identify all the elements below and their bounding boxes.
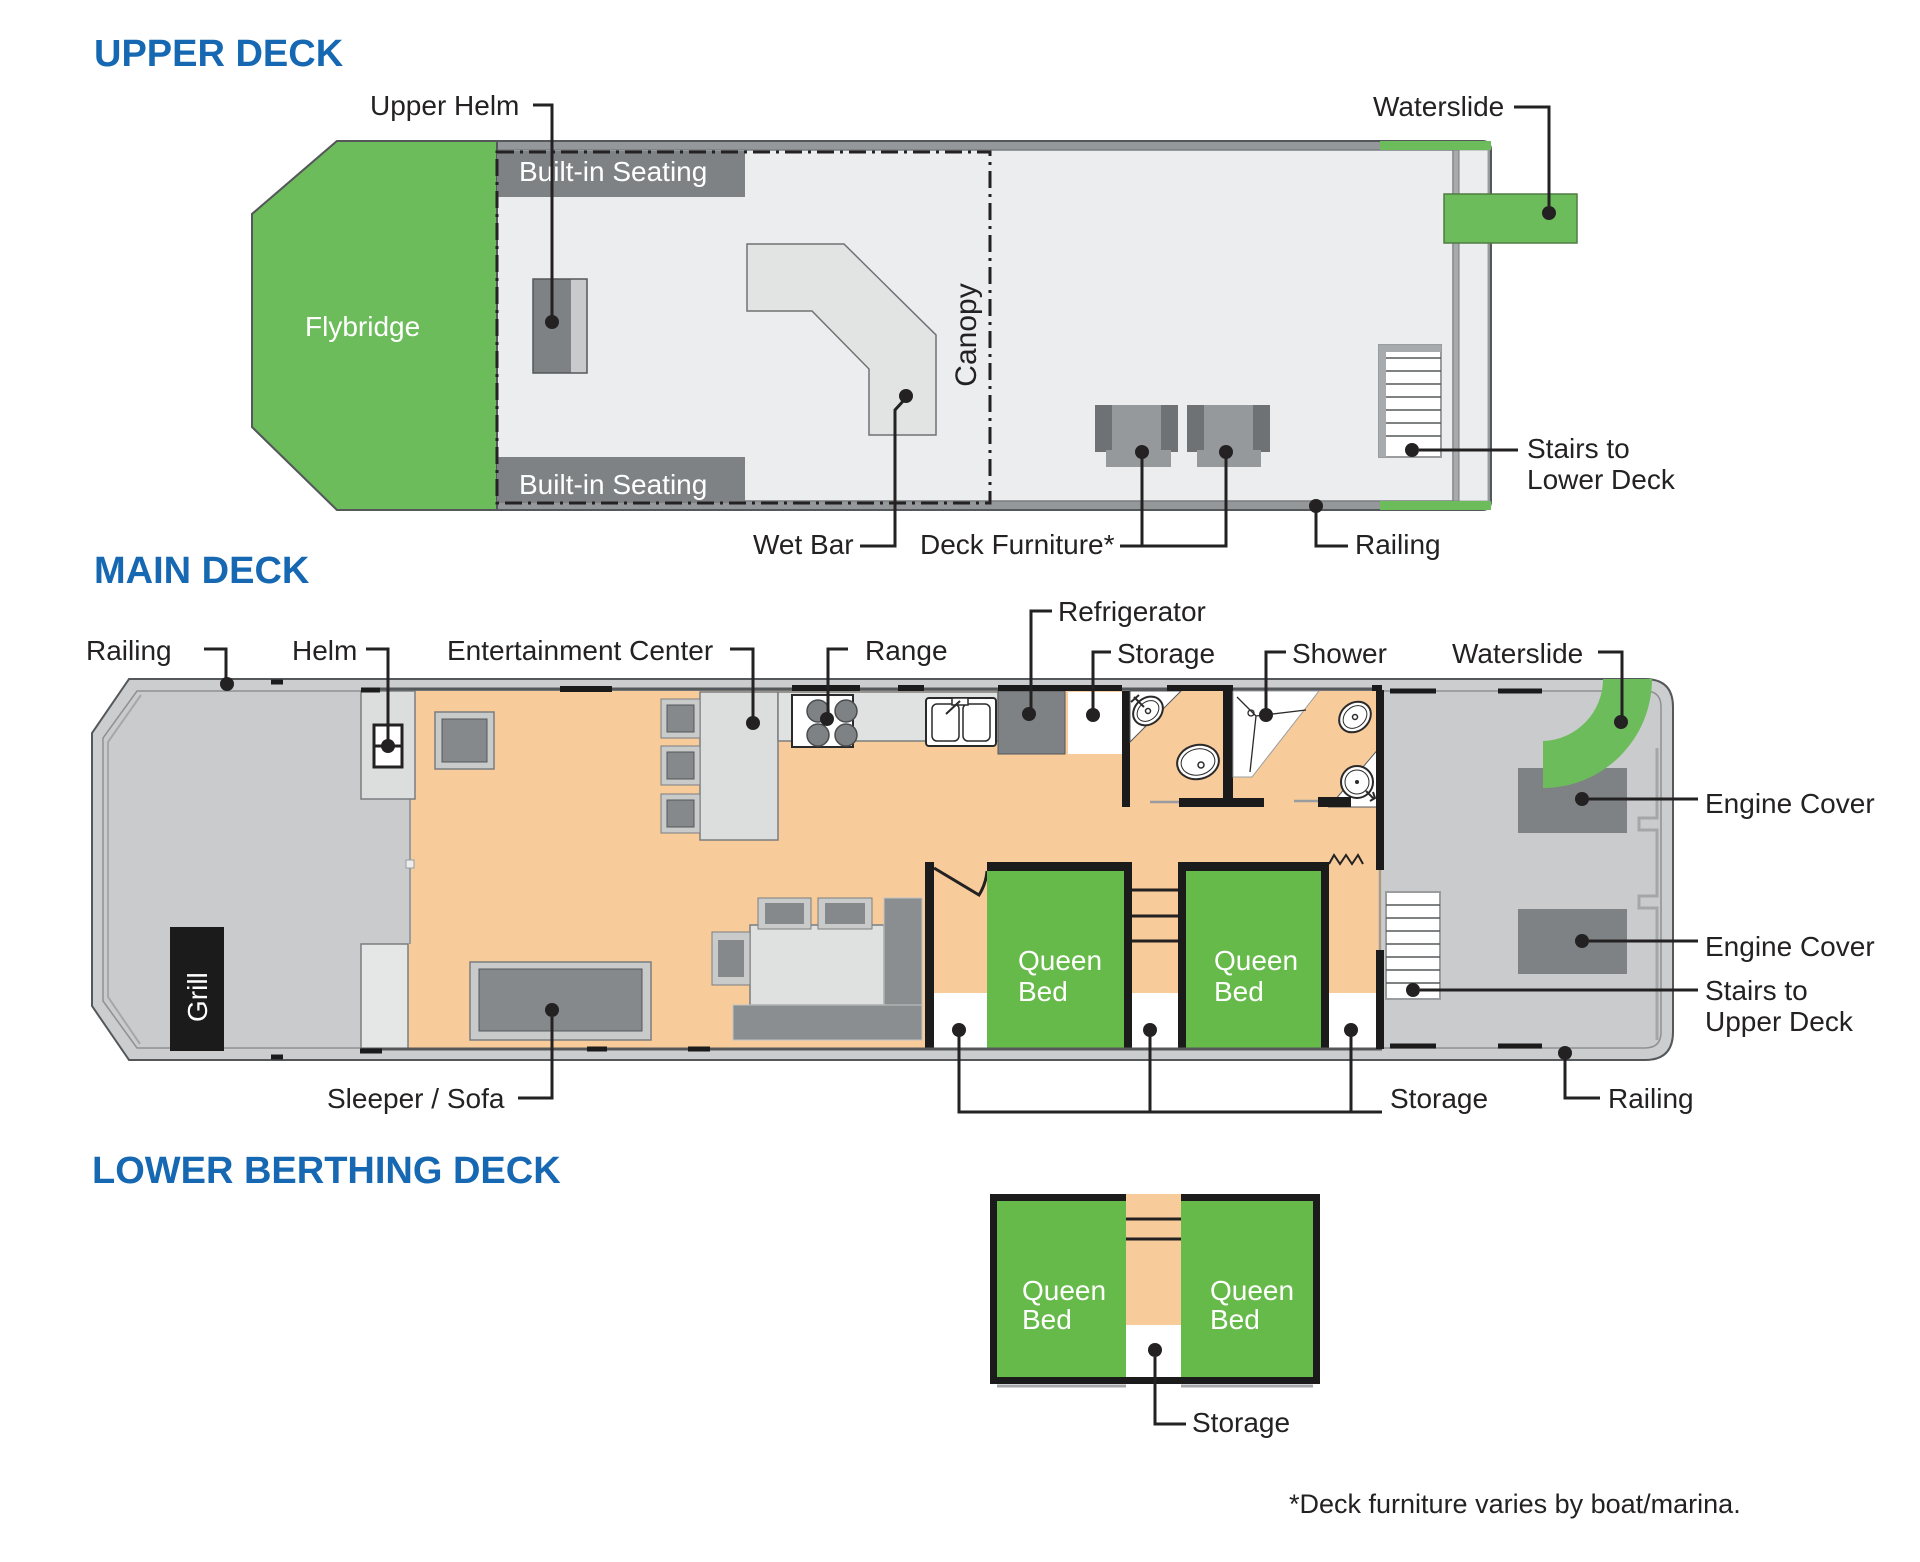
svg-text:Bed: Bed (1214, 976, 1264, 1007)
svg-text:UPPER DECK: UPPER DECK (94, 33, 344, 75)
svg-text:Queen: Queen (1018, 945, 1102, 976)
svg-text:Queen: Queen (1210, 1275, 1294, 1306)
svg-text:*Deck furniture varies by boat: *Deck furniture varies by boat/marina. (1289, 1489, 1741, 1519)
svg-text:Built-in Seating: Built-in Seating (519, 156, 707, 187)
svg-text:Lower Deck: Lower Deck (1527, 464, 1676, 495)
svg-text:Railing: Railing (1608, 1083, 1694, 1114)
svg-text:Helm: Helm (292, 635, 357, 666)
svg-text:Sleeper / Sofa: Sleeper / Sofa (327, 1083, 505, 1114)
svg-text:Wet Bar: Wet Bar (753, 529, 854, 560)
svg-text:Railing: Railing (1355, 529, 1441, 560)
svg-text:Upper Deck: Upper Deck (1705, 1006, 1854, 1037)
svg-text:Stairs to: Stairs to (1527, 433, 1630, 464)
svg-text:Shower: Shower (1292, 638, 1387, 669)
svg-text:Queen: Queen (1214, 945, 1298, 976)
svg-text:Bed: Bed (1210, 1304, 1260, 1335)
svg-text:Built-in Seating: Built-in Seating (519, 469, 707, 500)
svg-text:MAIN DECK: MAIN DECK (94, 550, 310, 592)
svg-text:Engine Cover: Engine Cover (1705, 788, 1875, 819)
svg-text:Entertainment Center: Entertainment Center (447, 635, 713, 666)
svg-text:Waterslide: Waterslide (1373, 91, 1504, 122)
svg-text:Storage: Storage (1192, 1407, 1290, 1438)
svg-text:Canopy: Canopy (950, 283, 983, 386)
svg-text:Range: Range (865, 635, 948, 666)
svg-text:Grill: Grill (182, 972, 213, 1022)
svg-text:LOWER BERTHING DECK: LOWER BERTHING DECK (92, 1150, 561, 1192)
svg-text:Storage: Storage (1117, 638, 1215, 669)
svg-text:Deck Furniture*: Deck Furniture* (920, 529, 1115, 560)
svg-text:Storage: Storage (1390, 1083, 1488, 1114)
svg-text:Bed: Bed (1022, 1304, 1072, 1335)
svg-text:Engine Cover: Engine Cover (1705, 931, 1875, 962)
svg-text:Railing: Railing (86, 635, 172, 666)
svg-text:Queen: Queen (1022, 1275, 1106, 1306)
svg-text:Stairs to: Stairs to (1705, 975, 1808, 1006)
svg-text:Flybridge: Flybridge (305, 311, 420, 342)
svg-text:Refrigerator: Refrigerator (1058, 596, 1206, 627)
svg-text:Waterslide: Waterslide (1452, 638, 1583, 669)
svg-text:Bed: Bed (1018, 976, 1068, 1007)
svg-text:Upper Helm: Upper Helm (370, 90, 519, 121)
